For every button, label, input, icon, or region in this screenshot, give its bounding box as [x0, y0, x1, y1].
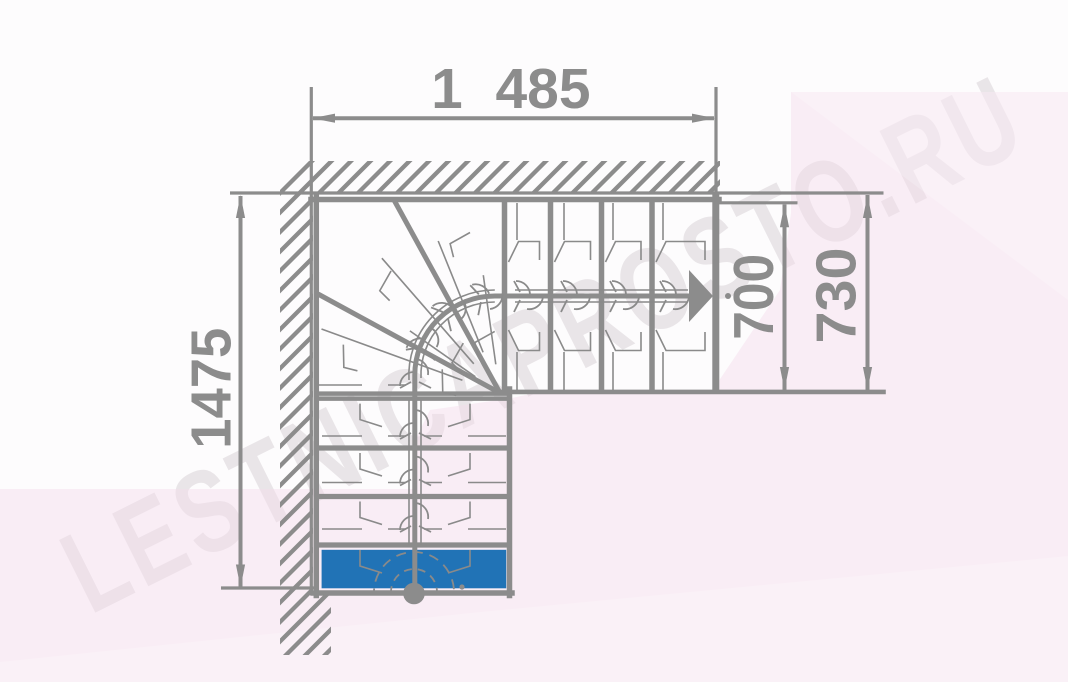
svg-text:1475: 1475	[180, 328, 243, 449]
svg-text:485: 485	[496, 57, 591, 120]
svg-text:1: 1	[431, 57, 462, 120]
svg-text:730: 730	[805, 248, 868, 344]
svg-text:700: 700	[722, 254, 785, 340]
